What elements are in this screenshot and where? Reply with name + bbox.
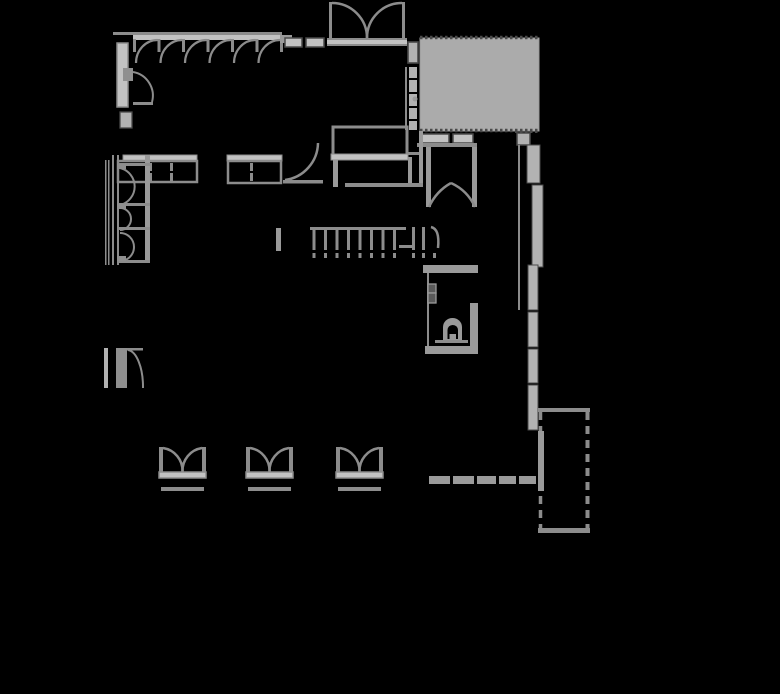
radiator [120,112,132,128]
boundary-dash [477,476,496,484]
stair-riser [336,230,339,250]
stair-riser-dash [422,253,425,258]
stair-riser [313,230,316,250]
window-mullion [158,39,161,52]
casement-leaf [117,204,126,209]
window-column-tick [409,78,417,80]
window-petal-arc [359,448,379,472]
window-sill [159,472,206,478]
window-outer-line [161,487,204,491]
wall-segment [285,38,302,47]
terrace-block [420,38,539,131]
wall-stub [408,157,412,183]
french-door-left-leaf [329,2,332,38]
stair-riser-dash [313,253,316,258]
right-wall-glass-panel [528,312,538,347]
window-column-tick [409,106,417,108]
french-door-right-arc [367,3,402,38]
window-stub [246,447,250,472]
island-counter-bar [331,154,408,160]
threshold-line [327,38,407,40]
cabinet-dash [250,173,253,181]
boundary-dash [429,476,450,484]
window-mullion [256,39,259,52]
bath-right-wall [470,303,478,348]
door-swing-arc [128,350,143,388]
right-wall-line [518,145,520,310]
balcony-bottom-edge [538,528,590,533]
vestibule-door-arc [429,183,451,207]
vestibule-left-wall [426,147,431,207]
window-sill [246,472,293,478]
casement-leaf [117,164,126,169]
stair-riser-dash [382,253,385,258]
left-wall-line [105,160,107,265]
french-door-left-arc [332,3,367,38]
wall-segment [421,134,449,143]
cabinet-dash [170,163,173,171]
window-outer-line [338,487,381,491]
right-wall-glass-panel [532,185,543,267]
window-mullion [182,39,185,52]
wall-segment [517,133,530,145]
fixture-box [428,284,436,293]
french-door-right-leaf [402,2,405,38]
threshold-line [327,44,407,46]
left-wall-line [117,155,119,265]
vestibule-lintel [417,143,477,147]
casement-arc [136,40,158,63]
window-column-top [408,42,418,63]
casement-arc [259,40,281,63]
left-wall-line [112,155,114,265]
floor-plan-drawing [0,0,780,694]
fixture-box [428,293,436,303]
top-wall-outer-line [113,32,282,35]
window-stub [289,447,293,472]
stair-riser [370,230,373,250]
window-petal-arc [182,448,202,472]
door-sill-line [133,102,153,105]
window-stub [159,447,163,472]
boundary-dash [519,476,536,484]
casement-arc [161,40,183,63]
kitchen-counter-outline [228,161,281,183]
door-handle-dot [413,97,418,102]
left-counter-edge [145,155,150,263]
right-wall-glass-panel [528,349,538,383]
stair-riser-dash [336,253,339,258]
stair-riser-dash [359,253,362,258]
window-stub [379,447,383,472]
wall-stub [419,131,423,187]
stair-riser [382,230,385,250]
boundary-dash [499,476,516,484]
cabinet-dash [170,173,173,181]
casement-arc [120,208,131,230]
window-mullion [207,39,210,52]
window-column-line [405,67,407,130]
casement-arc [234,40,256,63]
window-mullion [133,39,136,52]
left-wall-line [108,160,110,265]
stair-riser [393,230,396,250]
side-door-jamb [104,348,108,388]
casement-arc [185,40,207,63]
vestibule-door-arc [451,183,475,207]
island-outline [333,127,407,156]
stair-riser [324,230,327,250]
stair-curve [431,227,438,248]
counter-bottom-line [345,183,423,187]
stair-riser-dash [412,253,415,258]
threshold-band [327,40,407,44]
side-door-leaf [116,348,127,388]
wall-stub [276,228,281,251]
right-wall-glass-panel [527,145,540,183]
stair-riser-dash [393,253,396,258]
stair-top-line [310,227,406,230]
boundary-dash [453,476,474,484]
stair-riser-dash [324,253,327,258]
casement-leaf [117,256,126,261]
stair-riser [412,227,415,250]
window-column-tick [409,119,417,121]
stair-riser [422,227,425,250]
window-outer-line [248,487,291,491]
stair-riser [347,230,350,250]
window-stub [202,447,206,472]
counter-left-edge [333,160,338,187]
window-petal-arc [250,448,270,472]
balcony-left-bar [538,431,544,491]
bath-platform-line [435,340,468,343]
window-petal-arc [163,448,183,472]
stair-riser-dash [370,253,373,258]
bath-bottom-wall [425,346,478,354]
window-petal-arc [340,448,360,472]
window-sill [336,472,383,478]
wall-segment [306,38,324,47]
cabinet-dash [250,163,253,171]
window-column-tick [409,92,417,94]
floor-plan-canvas [0,0,780,694]
door-swing-arc [285,143,318,180]
vestibule-right-wall [472,147,477,207]
casement-arc [120,168,135,205]
window-stub [336,447,340,472]
balcony-top-edge [538,408,590,412]
bath-top-wall [423,265,478,273]
window-petal-arc [269,448,289,472]
right-wall-glass-panel [528,265,538,310]
toilet-base [450,334,457,340]
wall-segment [453,134,473,143]
stair-break-line [399,245,413,248]
door-leaf [123,68,133,81]
stair-riser-dash [433,253,436,258]
casement-arc [210,40,232,63]
door-swing-arc [133,72,153,102]
stair-riser-dash [347,253,350,258]
right-wall-glass-panel [528,385,538,430]
window-mullion [231,39,234,52]
stair-riser [359,230,362,250]
